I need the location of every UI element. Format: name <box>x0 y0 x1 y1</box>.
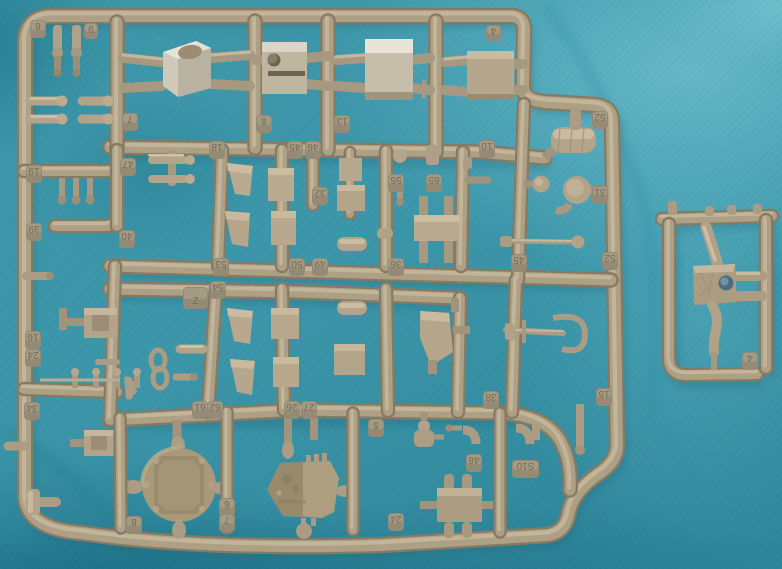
svg-text:6: 6 <box>35 20 41 31</box>
svg-text:46: 46 <box>307 141 319 152</box>
svg-text:18: 18 <box>211 141 223 152</box>
svg-text:6: 6 <box>224 498 230 509</box>
svg-text:49: 49 <box>314 258 326 269</box>
svg-text:16: 16 <box>27 331 39 342</box>
svg-text:4: 4 <box>490 25 496 36</box>
svg-text:7: 7 <box>127 113 133 124</box>
svg-text:38: 38 <box>485 391 497 402</box>
svg-text:36: 36 <box>390 258 402 269</box>
svg-text:7: 7 <box>224 514 230 525</box>
svg-text:S10: S10 <box>516 460 534 471</box>
svg-text:40: 40 <box>121 230 133 241</box>
svg-text:31: 31 <box>594 186 606 197</box>
svg-text:62: 62 <box>209 401 221 412</box>
svg-text:47: 47 <box>122 158 134 169</box>
svg-text:8: 8 <box>261 115 267 126</box>
svg-text:65: 65 <box>428 174 440 185</box>
svg-text:24: 24 <box>390 513 402 524</box>
svg-text:8: 8 <box>131 516 137 527</box>
svg-text:24: 24 <box>27 349 39 360</box>
svg-text:34: 34 <box>26 402 38 413</box>
svg-text:9: 9 <box>88 23 94 34</box>
svg-text:46: 46 <box>468 454 480 465</box>
svg-text:45: 45 <box>289 141 301 152</box>
svg-text:5: 5 <box>373 419 379 430</box>
svg-text:15: 15 <box>598 388 610 399</box>
svg-text:54: 54 <box>212 281 224 292</box>
svg-text:50: 50 <box>291 258 303 269</box>
svg-text:10: 10 <box>481 140 493 151</box>
svg-text:52: 52 <box>594 111 606 122</box>
svg-text:39: 39 <box>28 223 40 234</box>
svg-text:45: 45 <box>513 254 525 265</box>
svg-text:55: 55 <box>390 174 402 185</box>
svg-text:61: 61 <box>194 401 206 412</box>
svg-text:13: 13 <box>336 115 348 126</box>
svg-text:19: 19 <box>28 165 40 176</box>
svg-text:Z: Z <box>192 296 198 307</box>
svg-text:52: 52 <box>604 252 616 263</box>
svg-text:32: 32 <box>314 187 326 198</box>
svg-text:26: 26 <box>286 401 298 412</box>
svg-text:53: 53 <box>215 258 227 269</box>
svg-text:4: 4 <box>747 352 753 363</box>
svg-text:27: 27 <box>303 401 315 412</box>
